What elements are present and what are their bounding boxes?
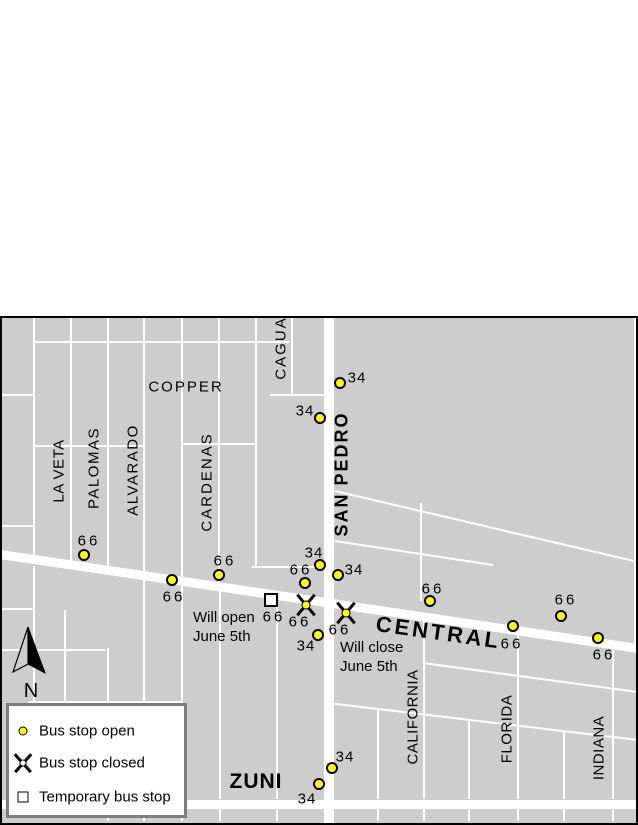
bus-stop-open [314,412,326,424]
route-number-label: 34 [296,403,315,420]
annotation: Will closeJune 5th [340,638,403,676]
minor-street [377,809,379,821]
minor-street [270,394,324,396]
route-number-label: 66 [263,609,286,626]
minor-street [468,720,470,799]
route-number-label: 66 [214,553,237,570]
legend-item-temporary: Temporary bus stop [9,787,184,807]
bus-stop-open [334,377,346,389]
minor-street [0,525,33,527]
street-label-indiana: INDIANA [591,716,608,780]
route-number-label: 66 [163,589,186,606]
north-arrow: N [8,622,54,700]
route-number-label: 34 [297,638,316,655]
minor-street [143,318,145,576]
bus-stop-open [78,549,90,561]
route-number-label: 66 [422,581,445,598]
minor-street [182,443,255,445]
north-label: N [24,680,38,703]
minor-street [377,709,379,799]
route-number-label: 66 [290,562,313,579]
minor-street [33,318,35,560]
minor-street [219,809,221,821]
bus-stop-open [213,569,225,581]
minor-street [634,318,636,644]
minor-street [64,610,66,703]
annotation: Will openJune 5th [193,608,255,646]
route-number-label: 34 [336,749,355,766]
route-number-label: 66 [555,592,578,609]
bus-stop-open [507,620,519,632]
alley-street [423,662,638,693]
minor-street [291,318,293,395]
annotation-line: Will close [340,638,403,657]
minor-street [517,809,519,821]
route-number-label: 66 [78,533,101,550]
annotation-line: Will open [193,608,255,627]
street-label-san-pedro: SAN PEDRO [332,411,353,536]
route-number-label: 34 [305,545,324,562]
street-label-california: CALIFORNIA [405,669,422,764]
legend-item-label: Bus stop open [39,723,135,740]
route-number-label: 34 [298,791,317,808]
street-label-cardenas: CARDENAS [199,432,216,531]
minor-street [33,341,289,343]
minor-street [563,809,565,821]
minor-street [423,809,425,821]
legend-item-open: Bus stop open [9,721,184,741]
route-number-label: 66 [329,622,352,639]
minor-street [468,809,470,821]
minor-street [563,731,565,799]
route-number-label: 34 [345,562,364,579]
legend-item-label: Temporary bus stop [39,789,171,806]
street-label-zuni: ZUNI [230,770,283,794]
minor-street [612,809,614,821]
temporary-bus-stop [264,593,278,607]
route-number-label: 66 [593,647,616,664]
route-number-label: 34 [348,370,367,387]
street-label-copper: COPPER [148,379,223,396]
minor-street [255,318,257,566]
bus-stop-open [313,778,325,790]
north-arrow-glyph [8,622,54,678]
bus-stop-open [299,577,311,589]
legend-item-label: Bus stop closed [39,755,145,772]
street-label-florida: FLORIDA [499,695,516,764]
minor-street [276,809,278,821]
route-number-label: 66 [501,636,524,653]
street-label-la-veta: LA VETA [51,439,68,502]
minor-street [181,318,183,581]
annotation-line: June 5th [193,627,255,646]
bus-stop-open [592,632,604,644]
minor-street [0,394,33,396]
minor-street [218,318,220,587]
minor-street [517,632,519,799]
alley-street [335,490,638,563]
minor-street [423,618,425,799]
bus-stop-open [166,574,178,586]
legend-item-closed: Bus stop closed [9,753,184,773]
minor-street [70,318,72,565]
minor-street [612,650,614,799]
page: { "colors": { "page_bg": "#ffffff", "map… [0,0,638,825]
street-label-alvarado: ALVARADO [125,424,142,515]
street-label-cagua: CAGUA [273,316,290,379]
bus-stop-open [332,569,344,581]
annotation-line: June 5th [340,657,403,676]
route-number-label: 66 [289,614,312,631]
street-label-palomas: PALOMAS [86,427,103,509]
bus-stop-open [555,610,567,622]
minor-street [107,318,109,570]
map: COPPERLA VETAPALOMASALVARADOCARDENASCAGU… [0,316,638,825]
minor-street [0,608,33,610]
legend: Bus stop open Bus stop closed Temporary … [6,703,187,818]
